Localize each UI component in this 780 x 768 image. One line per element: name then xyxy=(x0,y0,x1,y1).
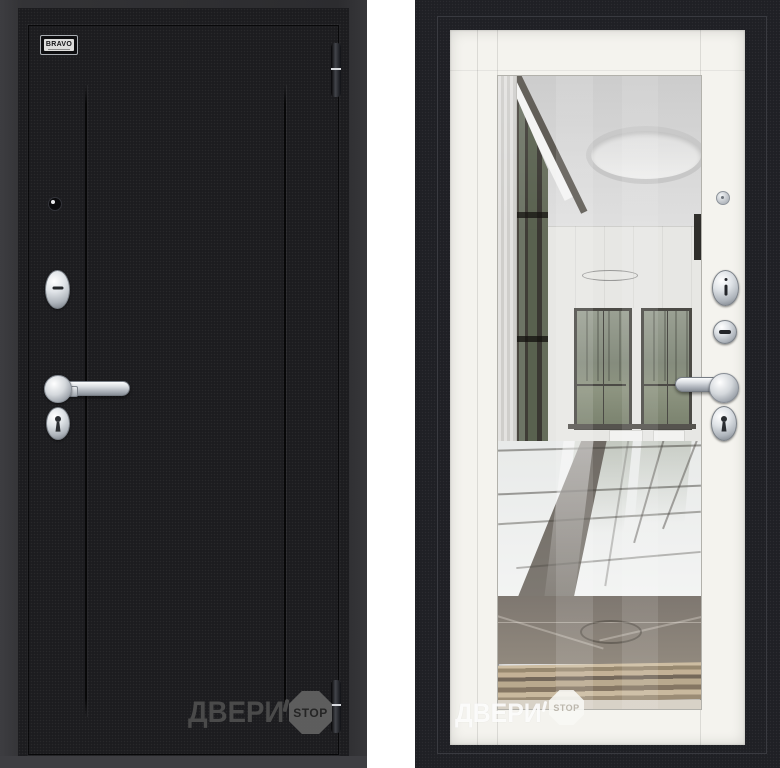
thumbturn-slot xyxy=(719,330,731,334)
brand-badge: BRAVO xyxy=(40,35,78,55)
marble-floor xyxy=(498,441,701,596)
brand-badge-microtext xyxy=(48,49,70,50)
rail-joint-top-left xyxy=(497,30,498,75)
striped-marble-threshold xyxy=(497,662,702,703)
stop-sign-label: STOP xyxy=(293,706,327,720)
panel-groove-right xyxy=(284,85,286,717)
door-handle xyxy=(44,375,72,403)
cylinder-slot xyxy=(52,286,63,289)
stop-sign-label: STOP xyxy=(553,703,579,713)
cylinder-lock-cover xyxy=(712,270,739,306)
stop-sign-icon: STOP xyxy=(289,691,332,734)
ceiling-light xyxy=(591,131,701,179)
peephole xyxy=(716,191,730,205)
cylinder-lock-cover xyxy=(45,270,70,309)
door-hinge-top xyxy=(331,43,341,97)
door-handle xyxy=(709,373,739,403)
mirror-door-photo: ДВЕРИ STOP xyxy=(415,0,780,768)
product-image-pair: BRAVO ДВЕРИ STOP xyxy=(0,0,780,768)
window-transom-left xyxy=(574,384,626,386)
foreground-tiles xyxy=(498,596,701,664)
keyhole-escutcheon xyxy=(46,407,70,440)
rail-joint-bottom-right xyxy=(700,708,701,745)
door-mirror xyxy=(497,75,702,710)
thumbturn-knob xyxy=(713,320,737,344)
window-sill xyxy=(568,424,696,429)
stop-sign-icon: STOP xyxy=(549,690,584,725)
black-door-photo: BRAVO ДВЕРИ STOP xyxy=(0,0,367,768)
door-leaf: BRAVO xyxy=(18,8,349,758)
keyhole-escutcheon xyxy=(711,406,737,441)
window-right xyxy=(641,308,692,430)
watermark-brand-text: ДВЕРИ xyxy=(188,698,284,728)
rail-joint-top-right xyxy=(700,30,701,75)
brand-badge-plate: BRAVO xyxy=(44,39,74,51)
window-left xyxy=(574,308,632,430)
door-hinge-bottom xyxy=(331,680,341,733)
watermark-brand-text: ДВЕРИ xyxy=(455,700,542,727)
cylinder-dot xyxy=(724,278,727,281)
brand-badge-label: BRAVO xyxy=(46,41,72,48)
floor-round-inset xyxy=(580,620,642,644)
slim-pendant-light xyxy=(582,270,638,281)
cylinder-slot xyxy=(724,284,727,295)
wall-dark-panel xyxy=(694,214,701,260)
wall-paneling xyxy=(547,226,701,308)
stile-joint-line xyxy=(477,30,478,745)
peephole xyxy=(48,197,62,211)
panel-groove-left xyxy=(85,85,87,717)
